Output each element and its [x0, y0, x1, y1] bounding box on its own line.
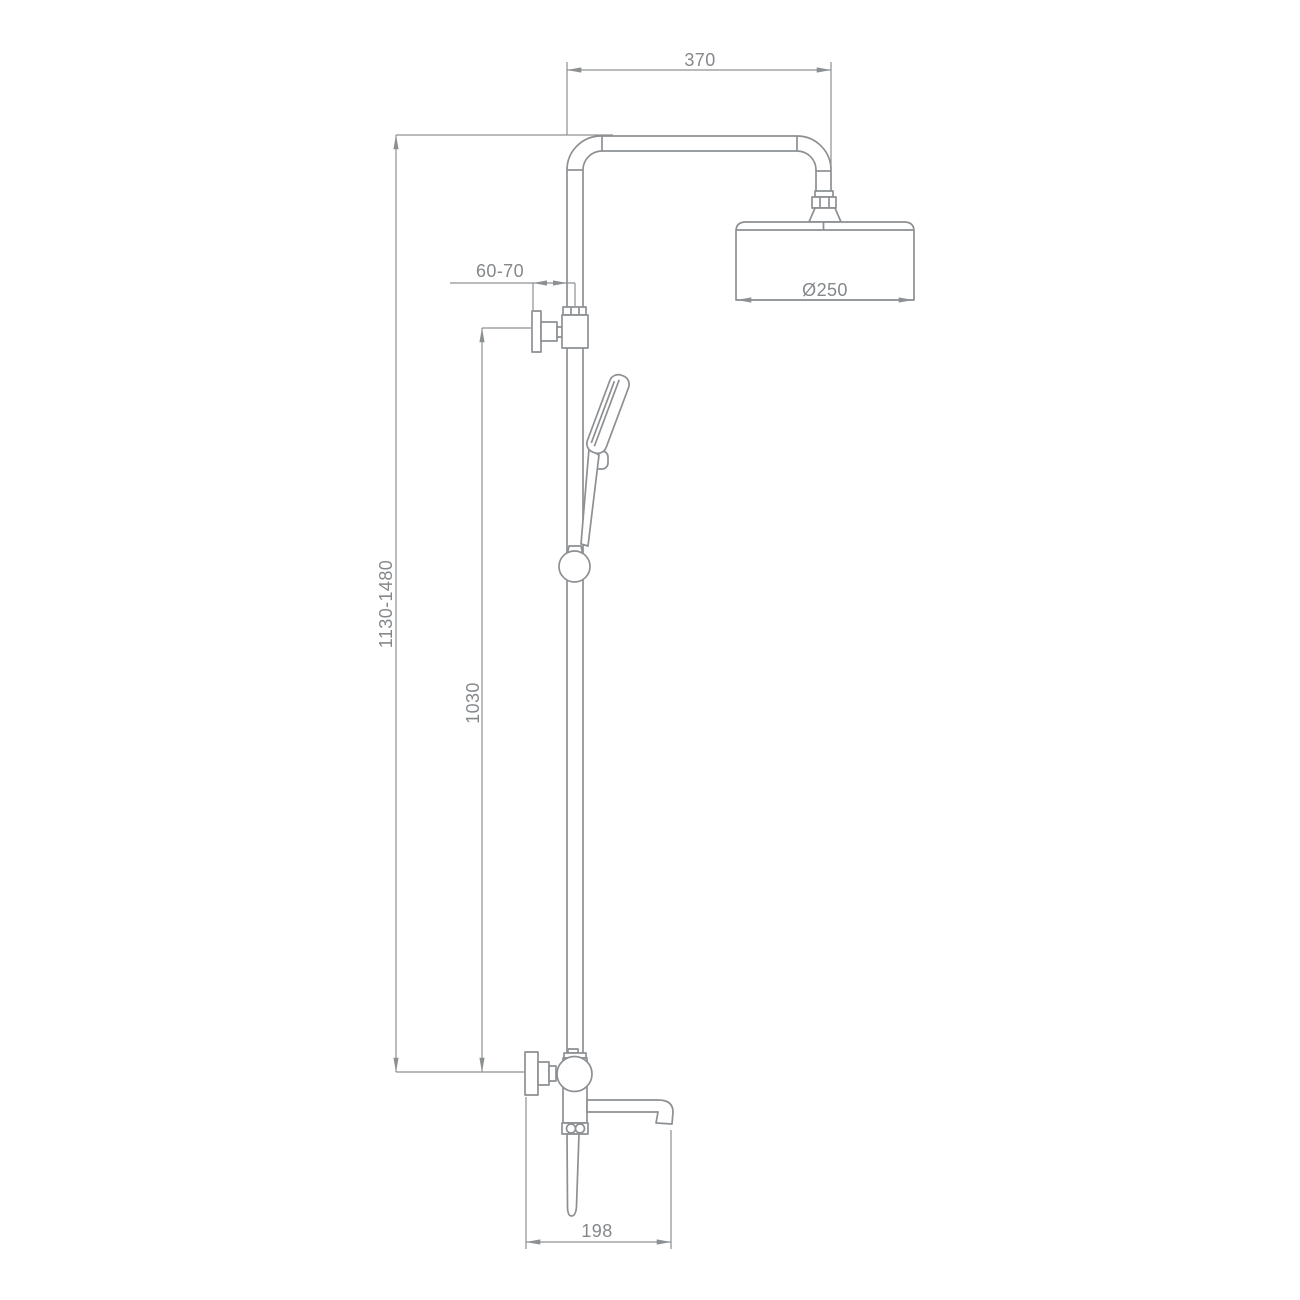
dim-arm-width-label: 370	[684, 50, 715, 70]
dim-overall-height-label: 1130-1480	[376, 560, 396, 648]
dim-wall-distance: 60-70	[450, 261, 575, 310]
dim-head-diameter-label: Ø250	[802, 280, 848, 300]
dim-riser-height-label: 1030	[463, 682, 483, 724]
shower-column-outline	[525, 136, 914, 1216]
slider-clamp	[559, 546, 590, 582]
mixer-handle-knob	[557, 1057, 592, 1092]
upper-wall-bracket	[532, 307, 588, 352]
hand-shower-head	[584, 372, 631, 456]
dim-riser-height: 1030	[463, 328, 531, 1072]
bath-mixer	[525, 1049, 673, 1216]
shower-arm	[567, 136, 831, 191]
bracket-pipe-housing	[562, 315, 588, 348]
arm-connector-nut	[809, 191, 841, 222]
dim-spout-reach-label: 198	[581, 1221, 612, 1241]
dim-spout-reach: 198	[526, 1097, 671, 1249]
mixer-wall-plate	[525, 1052, 538, 1095]
slider-knob	[559, 551, 590, 582]
tub-spout	[587, 1100, 673, 1124]
drawing-canvas: 370 Ø250 60-70 1130-1480 1030	[0, 0, 1300, 1300]
mixer-lever	[567, 1134, 579, 1216]
hand-shower	[581, 372, 632, 546]
shower-technical-drawing: 370 Ø250 60-70 1130-1480 1030	[0, 0, 1300, 1300]
dim-wall-distance-label: 60-70	[476, 261, 524, 281]
bracket-wall-plate	[532, 311, 541, 352]
